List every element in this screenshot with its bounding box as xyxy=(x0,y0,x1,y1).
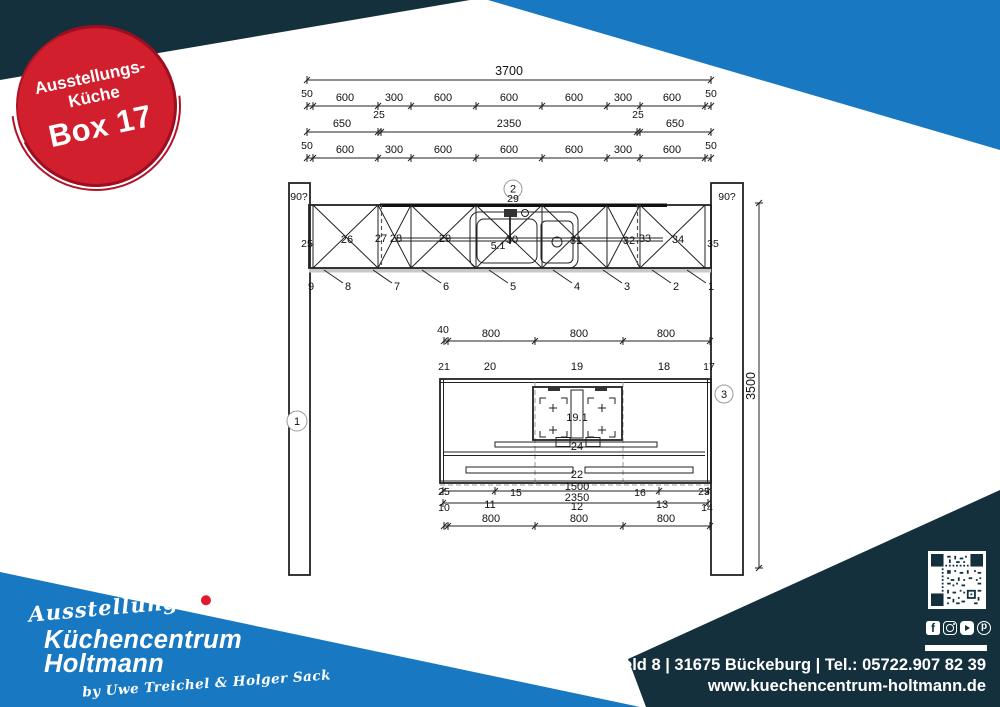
dim-label: 800 xyxy=(570,513,588,525)
dim-label: 600 xyxy=(336,144,354,156)
callout: 6 xyxy=(443,281,449,293)
item-label: 28 xyxy=(390,233,402,245)
facebook-icon xyxy=(926,621,940,635)
brand-line1: Küchencentrum xyxy=(44,628,242,652)
dim-label: 50 xyxy=(301,140,313,152)
angle-label-right: 90? xyxy=(718,191,736,203)
dim-label: 800 xyxy=(482,513,500,525)
youtube-icon xyxy=(960,621,974,635)
dim-label: 300 xyxy=(385,92,403,104)
callout: 20 xyxy=(484,361,496,373)
item-label: 25 xyxy=(438,486,450,498)
dim-label: 3500 xyxy=(744,372,758,400)
dim-label: 800 xyxy=(657,513,675,525)
dim-label: 50 xyxy=(301,88,313,100)
callout: 21 xyxy=(438,361,450,373)
item-label: 30 xyxy=(506,234,518,246)
callout: 8 xyxy=(345,281,351,293)
exhibition-badge: Ausstellungs- Küche Box 17 xyxy=(0,9,193,204)
dim-label: 600 xyxy=(434,92,452,104)
dim-label: 600 xyxy=(663,92,681,104)
item-label: 31 xyxy=(570,235,582,247)
angle-label-left: 90? xyxy=(290,191,308,203)
item-label: 5.1 xyxy=(491,240,506,252)
callout: 4 xyxy=(574,281,580,293)
drawer-handle xyxy=(585,467,693,473)
dim-label: 650 xyxy=(666,118,684,130)
dim-label: 600 xyxy=(500,144,518,156)
dimension-height: 3500 xyxy=(744,200,763,571)
item-label: 33 xyxy=(639,233,651,245)
dim-label: 800 xyxy=(570,328,588,340)
website-line: www.kuechencentrum-holtmann.de xyxy=(551,676,986,697)
contact-block: Großes Feld 8 | 31675 Bückeburg | Tel.: … xyxy=(551,655,986,698)
item-label: 34 xyxy=(672,234,684,246)
callout: 14 xyxy=(701,502,713,514)
dim-label: 800 xyxy=(657,328,675,340)
dim-label: 25 xyxy=(373,109,385,121)
callout: 10 xyxy=(438,502,450,514)
item-label: 25 xyxy=(698,486,710,498)
dim-label: 25 xyxy=(632,109,644,121)
island: 40 800 800 800 21 20 19 18 17 19.1 24 xyxy=(437,324,715,530)
badge-line3: Box 17 xyxy=(45,98,155,155)
dim-label: 300 xyxy=(385,144,403,156)
red-dot-icon xyxy=(201,594,212,605)
flyer-page: { "colors": { "navy": "#15303d", "blue":… xyxy=(0,0,1000,707)
dim-label: 50 xyxy=(705,88,717,100)
item-label: 16 xyxy=(634,487,646,499)
dim-label: 300 xyxy=(614,92,632,104)
dim-label: 650 xyxy=(333,118,351,130)
item-label: 26 xyxy=(341,234,353,246)
social-icons xyxy=(926,621,991,635)
dim-label: 600 xyxy=(663,144,681,156)
callout: 5 xyxy=(510,281,516,293)
dim-label: 600 xyxy=(336,92,354,104)
position-number: 1 xyxy=(294,416,300,428)
item-label: 22 xyxy=(571,469,583,481)
dim-label: 50 xyxy=(705,140,717,152)
item-label: 32 xyxy=(623,235,635,247)
drawer-handle xyxy=(466,467,573,473)
callout: 3 xyxy=(624,281,630,293)
dim-label: 2350 xyxy=(497,118,521,130)
cornice-strip xyxy=(380,204,667,208)
item-label: 27 xyxy=(375,233,387,245)
social-divider-bar xyxy=(925,645,987,651)
dim-label: 600 xyxy=(565,144,583,156)
brand-logo: Küchencentrum Holtmann xyxy=(44,628,242,676)
dim-label: 600 xyxy=(565,92,583,104)
callout: 1 xyxy=(708,281,714,293)
pinterest-icon xyxy=(977,621,991,635)
brand-line2: Holtmann xyxy=(44,652,242,676)
dim-label: 3700 xyxy=(495,64,523,78)
callout: 9 xyxy=(308,281,314,293)
item-label: 15 xyxy=(510,487,522,499)
item-label: 19.1 xyxy=(566,412,587,424)
callout: 13 xyxy=(656,499,668,511)
wall-cabinet-run: 2 29 25 26 27 28 29 5.1 30 31 32 33 34 3… xyxy=(301,180,719,293)
item-label: 29 xyxy=(507,193,519,205)
callout: 11 xyxy=(484,499,495,511)
item-label: 25 xyxy=(301,238,313,250)
dim-label: 300 xyxy=(614,144,632,156)
qr-pattern xyxy=(931,554,983,606)
callout: 18 xyxy=(658,361,670,373)
dimension-chain-top: 3700 50 600 300 600 600 600 300 600 50 6… xyxy=(301,64,717,162)
callout: 17 xyxy=(703,361,715,373)
instagram-icon xyxy=(943,621,957,635)
dim-label: 800 xyxy=(482,328,500,340)
dim-label: 600 xyxy=(500,92,518,104)
callout: 7 xyxy=(394,281,400,293)
item-label: 29 xyxy=(439,233,451,245)
position-number: 3 xyxy=(721,389,727,401)
dim-label: 600 xyxy=(434,144,452,156)
address-line: Großes Feld 8 | 31675 Bückeburg | Tel.: … xyxy=(551,655,986,676)
dim-label: 40 xyxy=(437,324,449,336)
callout: 19 xyxy=(571,361,583,373)
qr-code xyxy=(928,551,986,609)
item-label: 35 xyxy=(707,238,719,250)
faucet xyxy=(504,209,517,217)
callout: 2 xyxy=(673,281,679,293)
callout: 12 xyxy=(571,501,583,513)
